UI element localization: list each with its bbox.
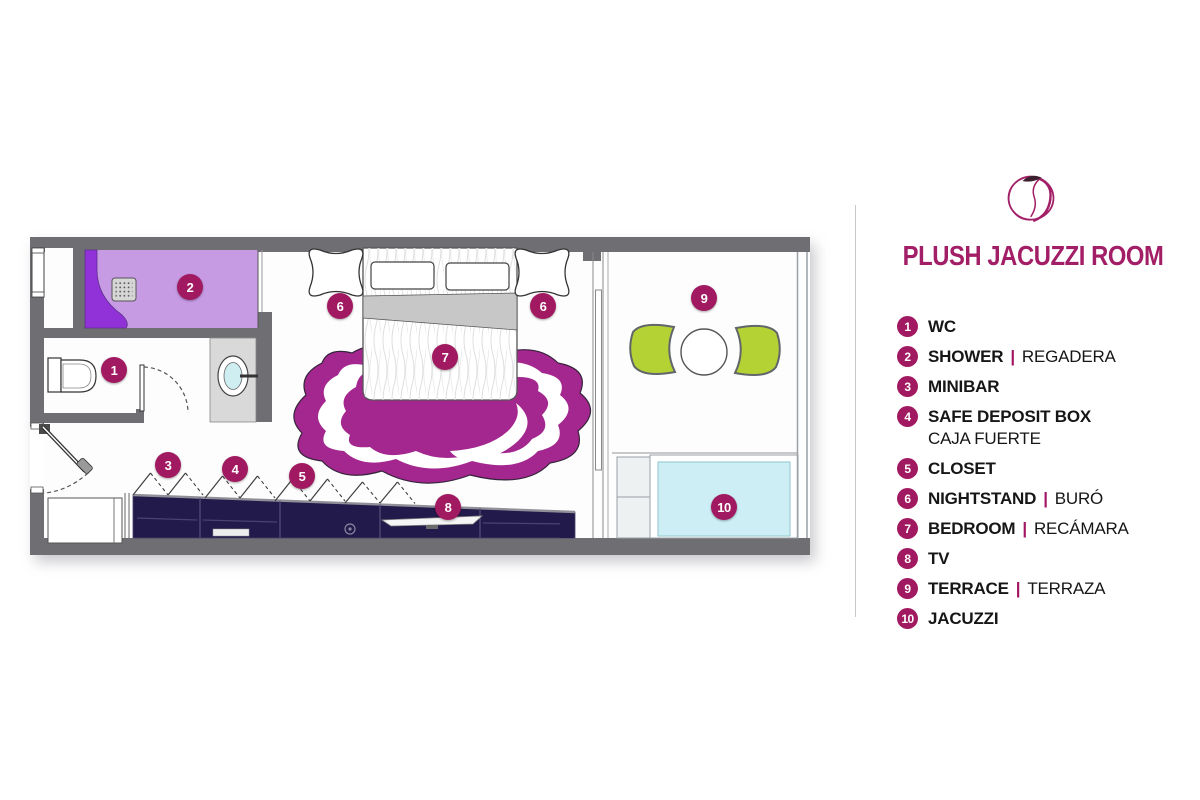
pillow xyxy=(446,263,509,290)
marker-shower: 2 xyxy=(177,274,203,300)
nightstand-left xyxy=(309,249,363,296)
legend: 1 WC 2 SHOWER|REGADERA 3 MINIBAR 4 SAFE … xyxy=(897,316,1187,629)
luggage-bench xyxy=(48,493,129,543)
apple-scribble-logo-icon xyxy=(1001,166,1061,226)
info-panel: PLUSH JACUZZI ROOM xyxy=(880,166,1182,272)
niche xyxy=(45,248,73,328)
legend-item-nightstand: 6 NIGHTSTAND|BURÓ xyxy=(897,488,1187,509)
legend-badge: 7 xyxy=(897,518,918,539)
legend-badge: 10 xyxy=(897,608,918,629)
page: 1 2 3 4 5 6 6 7 8 9 10 PLUSH JACUZZI ROO… xyxy=(0,0,1200,800)
marker-nightstand-left: 6 xyxy=(327,293,353,319)
marker-wc: 1 xyxy=(101,357,127,383)
legend-badge: 1 xyxy=(897,316,918,337)
floorplan-drawing xyxy=(30,235,812,557)
bed xyxy=(363,248,517,400)
legend-item-bedroom: 7 BEDROOM|RECÁMARA xyxy=(897,518,1187,539)
window xyxy=(32,248,44,297)
terrace-chair-right xyxy=(735,326,780,375)
legend-item-minibar: 3 MINIBAR xyxy=(897,376,1187,397)
pillow xyxy=(371,262,434,289)
marker-terrace: 9 xyxy=(691,285,717,311)
marker-closet: 5 xyxy=(289,463,315,489)
legend-badge: 9 xyxy=(897,578,918,599)
legend-badge: 6 xyxy=(897,488,918,509)
jacuzzi xyxy=(612,453,798,538)
legend-item-shower: 2 SHOWER|REGADERA xyxy=(897,346,1187,367)
legend-item-tv: 8 TV xyxy=(897,548,1187,569)
legend-badge: 3 xyxy=(897,376,918,397)
marker-tv: 8 xyxy=(435,494,461,520)
legend-item-jacuzzi: 10 JACUZZI xyxy=(897,608,1187,629)
sink-counter xyxy=(210,338,258,422)
marker-bedroom: 7 xyxy=(432,344,458,370)
panel-divider xyxy=(855,205,856,617)
floorplan: 1 2 3 4 5 6 6 7 8 9 10 xyxy=(30,235,812,557)
legend-item-closet: 5 CLOSET xyxy=(897,458,1187,479)
marker-nightstand-right: 6 xyxy=(530,293,556,319)
legend-item-terrace: 9 TERRACE|TERRAZA xyxy=(897,578,1187,599)
legend-item-wc: 1 WC xyxy=(897,316,1187,337)
legend-badge: 4 xyxy=(897,406,918,427)
legend-badge: 8 xyxy=(897,548,918,569)
marker-minibar: 3 xyxy=(155,452,181,478)
marker-safe-deposit-box: 4 xyxy=(222,456,248,482)
legend-badge: 5 xyxy=(897,458,918,479)
terrace-chair-left xyxy=(630,325,675,374)
legend-item-safe-deposit-box: 4 SAFE DEPOSIT BOXCAJA FUERTE xyxy=(897,406,1187,449)
marker-jacuzzi: 10 xyxy=(711,494,737,520)
legend-badge: 2 xyxy=(897,346,918,367)
page-title: PLUSH JACUZZI ROOM xyxy=(903,240,1160,272)
terrace-table xyxy=(681,329,727,375)
shower-area xyxy=(85,250,258,328)
toilet-icon xyxy=(48,358,96,392)
nightstand-right xyxy=(515,249,569,296)
